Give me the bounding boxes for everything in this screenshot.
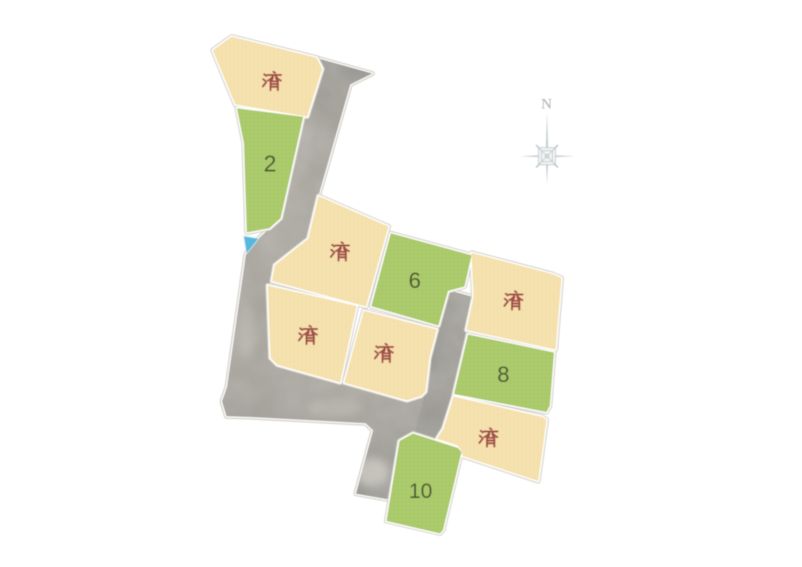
svg-text:6: 6	[409, 268, 421, 293]
svg-text:10: 10	[409, 480, 432, 503]
svg-text:8: 8	[497, 362, 509, 387]
svg-text:2: 2	[264, 151, 277, 177]
svg-text:N: N	[541, 97, 552, 113]
